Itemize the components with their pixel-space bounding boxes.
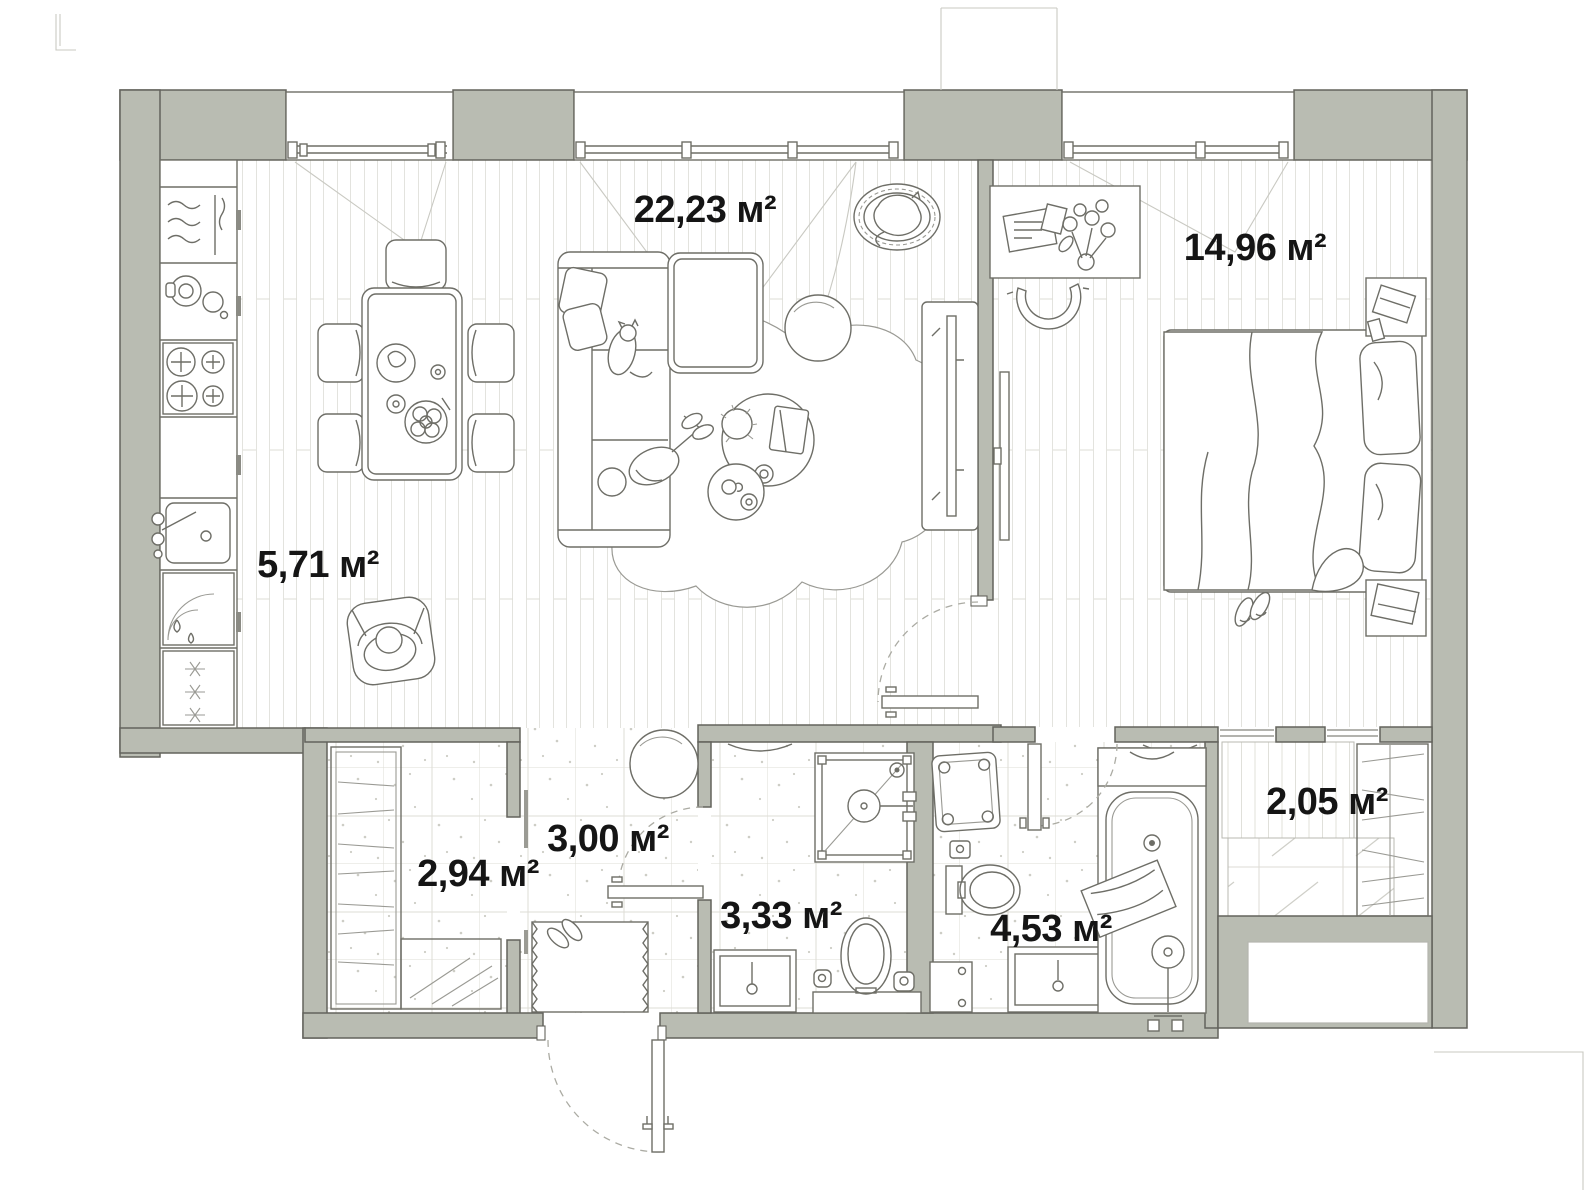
hall-pouf — [630, 730, 698, 798]
coffee-table-small — [708, 464, 764, 520]
room-label-bathroom: 4,53 м² — [990, 908, 1112, 950]
desk — [990, 186, 1140, 278]
toilet-paper-holder — [894, 972, 914, 991]
room-label-bedroom: 14,96 м² — [1184, 227, 1326, 269]
cat-basket — [854, 184, 940, 250]
dining-table — [362, 288, 462, 480]
room-label-hallway: 3,00 м² — [547, 818, 669, 860]
floor-drain — [814, 970, 831, 987]
pillow — [1359, 341, 1421, 456]
window-bedroom — [1062, 92, 1294, 160]
nightstand-bottom — [1366, 580, 1426, 636]
wall-drain — [950, 841, 970, 858]
sofa — [558, 252, 670, 547]
tv-stand — [922, 302, 978, 530]
ottoman — [668, 253, 763, 373]
bed — [1164, 330, 1422, 592]
doormat — [532, 916, 648, 1012]
room-label-living-room: 22,23 м² — [634, 189, 776, 231]
pillow — [1358, 462, 1421, 574]
kitchen-cabinets — [152, 160, 241, 728]
floor-plan: 22,23 м² 14,96 м² 5,71 м² 2,94 м² 3,00 м… — [0, 0, 1591, 1200]
bathtub — [1081, 748, 1206, 1031]
sink — [1008, 947, 1108, 1012]
person-sitting — [345, 595, 438, 688]
shower-cabin — [815, 753, 916, 862]
pouf — [785, 295, 851, 361]
entrance-door — [548, 1040, 673, 1152]
washing-machine — [931, 752, 1000, 832]
sink — [714, 950, 796, 1012]
balcony-floor-lower — [1228, 838, 1394, 916]
exterior-shaft — [941, 8, 1057, 90]
nightstand-top — [1366, 278, 1426, 341]
room-label-shower-room: 3,33 м² — [720, 895, 842, 937]
blanket — [1164, 332, 1324, 590]
room-label-kitchen: 5,71 м² — [257, 544, 379, 586]
exterior-niche — [1248, 942, 1428, 1023]
book — [769, 406, 809, 454]
bath-cabinet — [930, 962, 972, 1012]
wardrobe-door-track — [524, 790, 528, 848]
floor-plan-drawing: 22,23 м² 14,96 м² 5,71 м² 2,94 м² 3,00 м… — [0, 0, 1591, 1200]
window-kitchen — [286, 92, 453, 160]
plant — [722, 409, 752, 439]
window-living-room — [574, 92, 904, 160]
room-label-balcony: 2,05 м² — [1266, 781, 1388, 823]
room-label-wardrobe: 2,94 м² — [417, 853, 539, 895]
